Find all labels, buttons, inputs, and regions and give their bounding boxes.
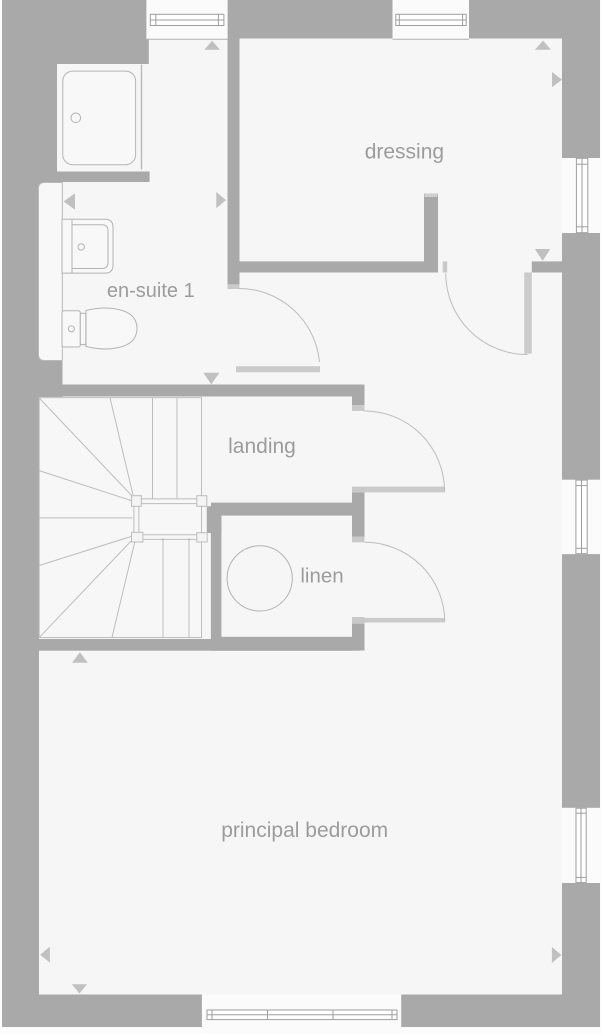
svg-text:en-suite 1: en-suite 1	[107, 280, 195, 302]
svg-text:linen: linen	[300, 565, 343, 588]
svg-text:dressing: dressing	[365, 140, 444, 163]
svg-text:principal bedroom: principal bedroom	[221, 819, 388, 842]
svg-text:landing: landing	[228, 435, 296, 458]
